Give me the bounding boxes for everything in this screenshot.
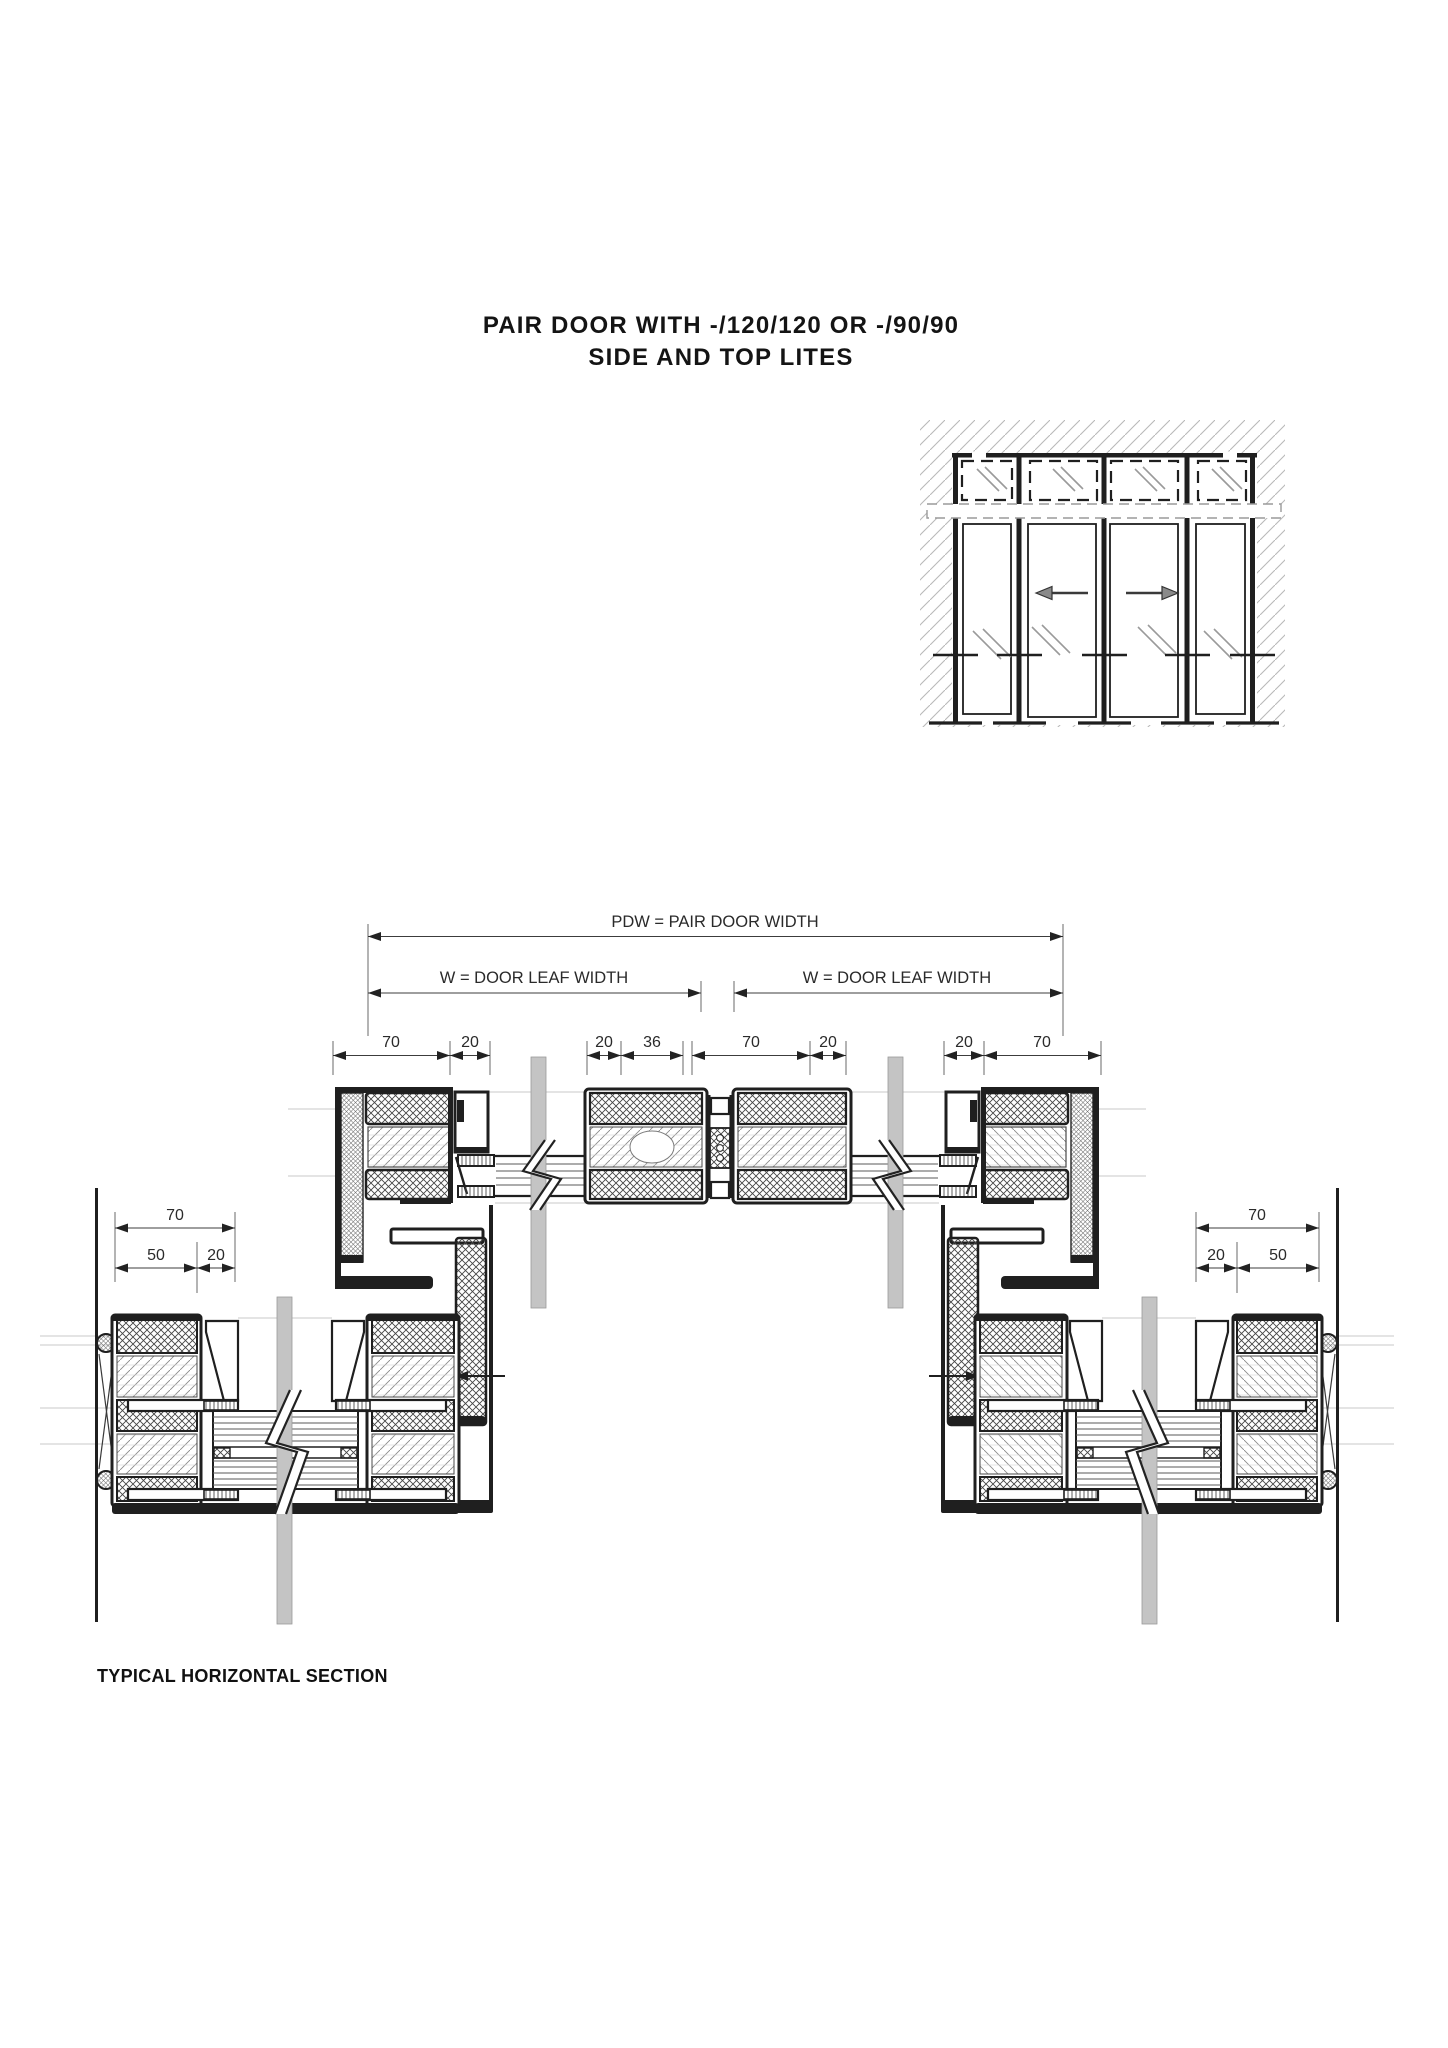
insulation-block <box>117 1320 197 1353</box>
dim-value: 50 <box>1269 1247 1287 1264</box>
dim-label-pdw: PDW = PAIR DOOR WIDTH <box>611 913 818 931</box>
dim-value: 50 <box>147 1247 165 1264</box>
drawing-sheet: PAIR DOOR WITH -/120/120 OR -/90/90 SIDE… <box>0 0 1448 2048</box>
door-stop-profile <box>332 1321 364 1401</box>
title-line-1: PAIR DOOR WITH -/120/120 OR -/90/90 <box>483 312 959 339</box>
door-leaf-band <box>458 1155 592 1197</box>
section-right-side <box>842 1057 1394 1624</box>
core-block <box>372 1356 454 1397</box>
dim-value: 36 <box>643 1034 661 1051</box>
core-block <box>372 1434 454 1474</box>
top-dimension-chain: 70 20 20 36 70 20 20 70 <box>333 1034 1101 1075</box>
core-block <box>368 1127 451 1167</box>
lock-gasket-column <box>707 1095 733 1198</box>
insulation-block <box>366 1093 451 1124</box>
wall-line <box>95 1188 98 1622</box>
door-stop-profile <box>206 1321 238 1401</box>
dim-value: 70 <box>742 1034 760 1051</box>
dim-value: 20 <box>595 1034 613 1051</box>
drawing-title: PAIR DOOR WITH -/120/120 OR -/90/90 SIDE… <box>483 312 959 371</box>
dim-value: 20 <box>1207 1247 1225 1264</box>
dim-value: 70 <box>382 1034 400 1051</box>
dim-value: 20 <box>461 1034 479 1051</box>
core-block <box>117 1434 197 1474</box>
dim-value: 70 <box>1033 1034 1051 1051</box>
meeting-stiles <box>585 1089 851 1203</box>
elevation-diagram <box>920 420 1285 727</box>
dim-label-w-right: W = DOOR LEAF WIDTH <box>803 969 991 987</box>
insulation-block <box>366 1170 451 1199</box>
break-bar <box>277 1297 292 1624</box>
dim-value: 70 <box>166 1207 184 1224</box>
hardware-cutout <box>630 1131 674 1163</box>
transom-band <box>927 504 1281 518</box>
dim-value: 70 <box>1248 1207 1266 1224</box>
dim-value: 20 <box>955 1034 973 1051</box>
spacer-block <box>214 1448 230 1458</box>
right-dimension-chain: 70 20 50 <box>1196 1207 1319 1293</box>
dim-value: 20 <box>819 1034 837 1051</box>
break-bar <box>531 1057 546 1308</box>
dim-value: 20 <box>207 1247 225 1264</box>
glazing-bead <box>458 1155 494 1166</box>
title-line-2: SIDE AND TOP LITES <box>588 344 853 371</box>
section-caption: TYPICAL HORIZONTAL SECTION <box>97 1666 388 1686</box>
section-left-side <box>40 1057 592 1624</box>
dim-label-w-left: W = DOOR LEAF WIDTH <box>440 969 628 987</box>
insulation-strip <box>341 1093 363 1262</box>
core-block <box>117 1356 197 1397</box>
glazing-bead <box>458 1186 494 1197</box>
left-dimension-chain: 70 50 20 <box>115 1207 235 1293</box>
spacer-block <box>341 1448 357 1458</box>
insulation-block <box>372 1320 454 1353</box>
